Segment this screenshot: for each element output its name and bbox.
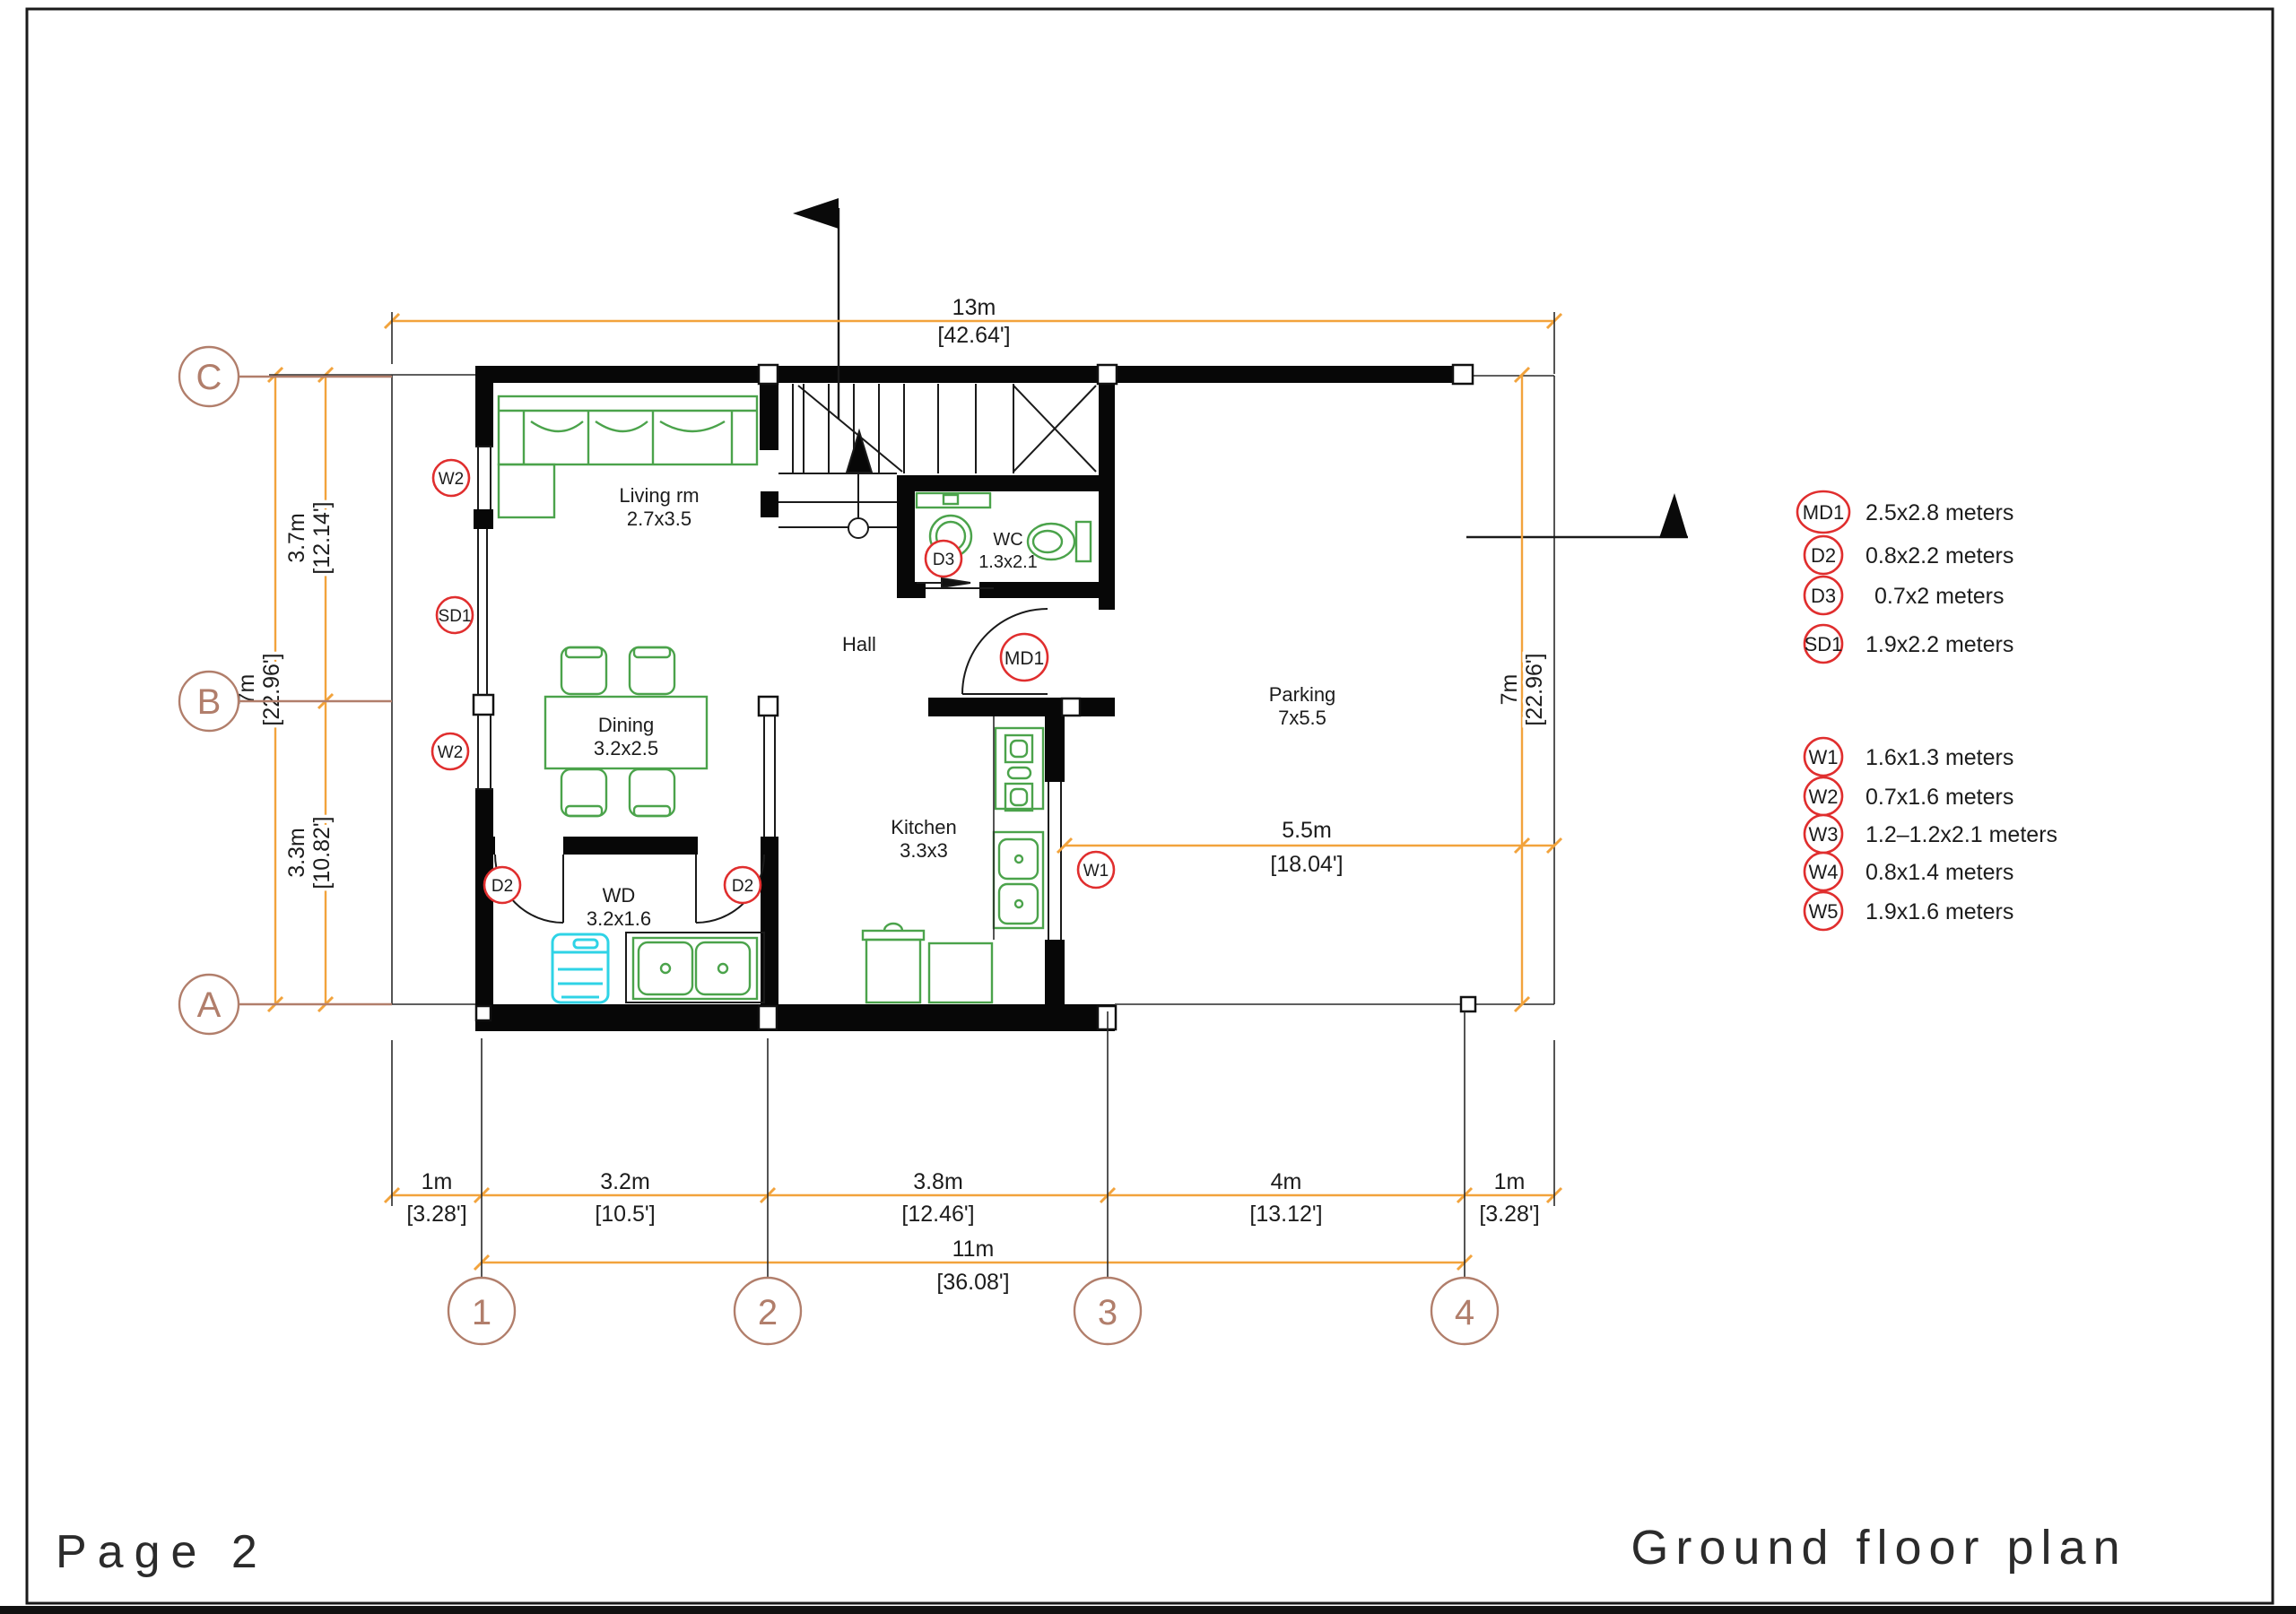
legend-d3-tag: D3 [1811,585,1836,607]
kitchen-size: 3.3x3 [900,839,948,862]
kitchen-sink-icon [994,832,1043,928]
legend-w1-tag: W1 [1809,746,1839,768]
grid-row-b-label: B [197,682,222,722]
glass-partition-icon [764,716,775,837]
window-w1-icon [1048,782,1061,940]
dim-b4-m: 1m [1494,1169,1526,1194]
dim-left-lower-ft: [10.82'] [309,816,335,889]
tag-md1: MD1 [1004,648,1044,669]
kitchen-label: Kitchen [891,816,956,838]
legend-windows: W1 1.6x1.3 meters W2 0.7x1.6 meters W3 1… [1805,738,2057,930]
hall-label: Hall [842,633,876,655]
stove-icon [996,728,1043,811]
dim-left-total-ft: [22.96'] [259,653,284,725]
legend-w3-tag: W3 [1809,823,1839,846]
dim-right-total-ft: [22.96'] [1522,653,1547,725]
living-room-size: 2.7x3.5 [627,508,691,530]
property-lines [392,375,1554,1004]
legend-md1-size: 2.5x2.8 meters [1865,500,2013,525]
legend: MD1 2.5x2.8 meters D2 0.8x2.2 meters D3 … [1797,491,2057,930]
dim-b1-ft: [10.5'] [595,1202,655,1227]
wd-size: 3.2x1.6 [587,907,651,930]
legend-d2-tag: D2 [1811,544,1836,567]
trash-bin-icon [863,924,924,1002]
dim-b3-m: 4m [1271,1169,1302,1194]
dim-btotal-m: 11m [952,1237,995,1262]
wc-size: 1.3x2.1 [978,552,1038,572]
plan-title: Ground floor plan [1631,1521,2126,1575]
grid-row-a-label: A [197,985,222,1025]
dim-b2-ft: [12.46'] [901,1202,974,1227]
extension-lines [266,312,1554,1277]
tag-d2-left: D2 [491,877,513,896]
dim-btotal-ft: [36.08'] [936,1270,1009,1295]
grid-row-c-label: C [196,358,222,397]
wd-label: WD [603,884,636,907]
dim-b2-m: 3.8m [913,1169,963,1194]
dim-b0-m: 1m [422,1169,453,1194]
tag-w2-top: W2 [439,470,465,489]
legend-w1-size: 1.6x1.3 meters [1865,745,2013,770]
dimension-ticks [268,314,1561,1270]
stairs-icon [778,384,1096,538]
dim-left-upper-m: 3.7m [284,513,309,563]
legend-d3-size: 0.7x2 meters [1874,584,2005,609]
floor-plan-drawing: 13m [42.64'] 3.7m [12.14'] 3.3m [10.82']… [0,0,2296,1614]
dimension-labels: 13m [42.64'] 3.7m [12.14'] 3.3m [10.82']… [234,295,1547,1295]
sheet-titles: Page 2 Ground floor plan [56,1521,2127,1578]
dim-b3-ft: [13.12'] [1249,1202,1322,1227]
opening-tags: W2 SD1 W2 D2 D2 D3 MD1 W1 [432,460,1114,903]
dim-b1-m: 3.2m [600,1169,650,1194]
tag-d3: D3 [933,551,954,569]
parking-size: 7x5.5 [1278,707,1326,729]
legend-w3-size: 1.2–1.2x2.1 meters [1865,822,2057,847]
page-number-label: Page 2 [56,1526,268,1578]
entry-arrow-icon [1466,493,1688,538]
grid-col-1-label: 1 [472,1293,491,1332]
grid-col-2-label: 2 [758,1293,778,1332]
legend-sd1-size: 1.9x2.2 meters [1865,632,2013,657]
grid-col-4-label: 4 [1455,1293,1474,1332]
tag-w2-bottom: W2 [438,743,464,762]
dining-label: Dining [598,714,654,736]
wc-label: WC [993,530,1022,550]
wd-sink-icon [633,938,757,999]
dim-left-lower-m: 3.3m [284,828,309,878]
legend-w4-size: 0.8x1.4 meters [1865,860,2013,885]
living-room-label: Living rm [619,484,699,507]
tag-d2-right: D2 [732,877,753,896]
kitchen-counter-icon [929,943,992,1002]
window-w2-top-icon [475,447,493,509]
legend-w4-tag: W4 [1809,861,1839,883]
sheet-border [0,9,2296,1614]
legend-doors: MD1 2.5x2.8 meters D2 0.8x2.2 meters D3 … [1797,491,2013,663]
dim-top-ft: [42.64'] [937,323,1010,348]
dining-size: 3.2x2.5 [594,737,658,759]
legend-w5-size: 1.9x1.6 meters [1865,899,2013,924]
window-w2-bottom-icon [475,715,493,789]
dimension-lines [275,321,1554,1263]
dim-top-m: 13m [952,295,996,320]
dim-b0-ft: [3.28'] [406,1202,466,1227]
dim-left-upper-ft: [12.14'] [309,501,335,574]
legend-w2-tag: W2 [1809,785,1839,808]
legend-d2-size: 0.8x2.2 meters [1865,543,2013,568]
legend-sd1-tag: SD1 [1805,633,1843,655]
floor-plan-sheet: 13m [42.64'] 3.7m [12.14'] 3.3m [10.82']… [0,0,2296,1614]
legend-md1-tag: MD1 [1803,501,1844,524]
grid-col-3-label: 3 [1098,1293,1118,1332]
legend-w5-tag: W5 [1809,900,1839,923]
washing-machine-icon [552,934,608,1002]
dim-parking-ft: [18.04'] [1270,852,1343,877]
legend-w2-size: 0.7x1.6 meters [1865,785,2013,810]
tag-sd1: SD1 [439,607,472,626]
sliding-door-sd1-icon [478,529,487,695]
tag-w1: W1 [1083,862,1109,881]
dim-parking-m: 5.5m [1282,818,1332,843]
dim-right-total-m: 7m [1497,674,1522,706]
dim-b4-ft: [3.28'] [1479,1202,1539,1227]
parking-label: Parking [1269,683,1336,706]
